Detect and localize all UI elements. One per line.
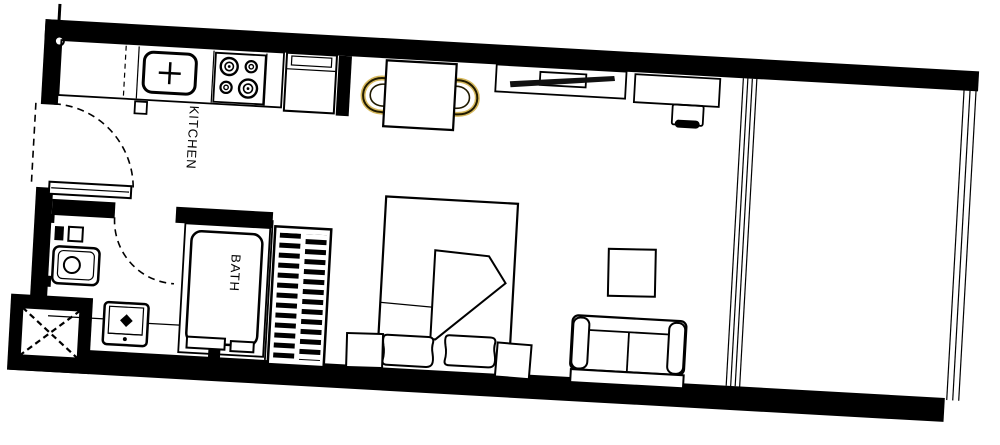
- wall-tick-top-left: [57, 4, 61, 22]
- kitchen-sink: [143, 52, 197, 95]
- floor-plan-canvas: KITCHEN BATH: [0, 0, 1000, 445]
- dining-chair-right: [454, 80, 478, 115]
- desk-chair-back: [675, 119, 700, 128]
- bath-wall-nub-2: [44, 276, 52, 287]
- slatted-wardrobe: [268, 226, 332, 367]
- bath-wall-nub-1: [47, 214, 54, 223]
- bath-door-swing: [111, 217, 177, 283]
- cooktop-4-burner: [213, 53, 266, 105]
- desk-area: [633, 74, 721, 130]
- burner-small-tr: [245, 61, 257, 73]
- plan-rotated: KITCHEN BATH: [7, 2, 980, 423]
- burner-large-br: [239, 79, 258, 98]
- kitchen-wall-stub: [336, 56, 352, 117]
- bath-partition-line-right: [148, 323, 180, 325]
- burner-large-tl: [220, 58, 238, 76]
- counter-divider-1: [136, 46, 139, 98]
- entry-door-swing: [49, 104, 138, 193]
- kitchen-label: KITCHEN: [183, 105, 202, 170]
- dining-table: [383, 60, 457, 130]
- wall-accessory-dark: [54, 226, 64, 240]
- glass-partition: [726, 78, 757, 386]
- coffee-table: [608, 249, 656, 297]
- entry-door-leaf: [31, 103, 36, 187]
- burner-small-bl: [220, 81, 232, 93]
- shower-unit: [103, 302, 149, 346]
- floor-plan-page: KITCHEN BATH: [0, 0, 1000, 445]
- dining-chair-left: [362, 77, 386, 112]
- sofa-armrest-right: [667, 322, 686, 374]
- bath-label: BATH: [227, 254, 244, 292]
- nightstand-left: [346, 333, 383, 368]
- washbasin-vanity: [52, 246, 100, 286]
- pillow-left: [382, 335, 434, 368]
- bathtub: BATH: [178, 223, 270, 361]
- balcony-railing: [947, 89, 976, 401]
- desk: [634, 74, 720, 107]
- faucet-cross-v: [169, 62, 170, 84]
- kitchen-area: KITCHEN: [55, 40, 337, 177]
- switch-box: [134, 101, 147, 114]
- pillow-right: [444, 335, 496, 368]
- bath-wall-left-segment: [52, 199, 116, 218]
- counter-divider-dashed: [123, 46, 126, 98]
- sofa-two-seat: [569, 315, 687, 388]
- kitchen-cabinet: [284, 53, 337, 114]
- nightstand-right: [495, 342, 532, 379]
- duct-shaft: [20, 307, 81, 358]
- duct-shaft-box: [20, 307, 81, 358]
- bed-area: [345, 195, 539, 379]
- lounge-area: [569, 245, 690, 388]
- dining-area: [361, 59, 479, 131]
- sofa-armrest-left: [571, 317, 590, 369]
- wall-accessory-box: [68, 227, 83, 242]
